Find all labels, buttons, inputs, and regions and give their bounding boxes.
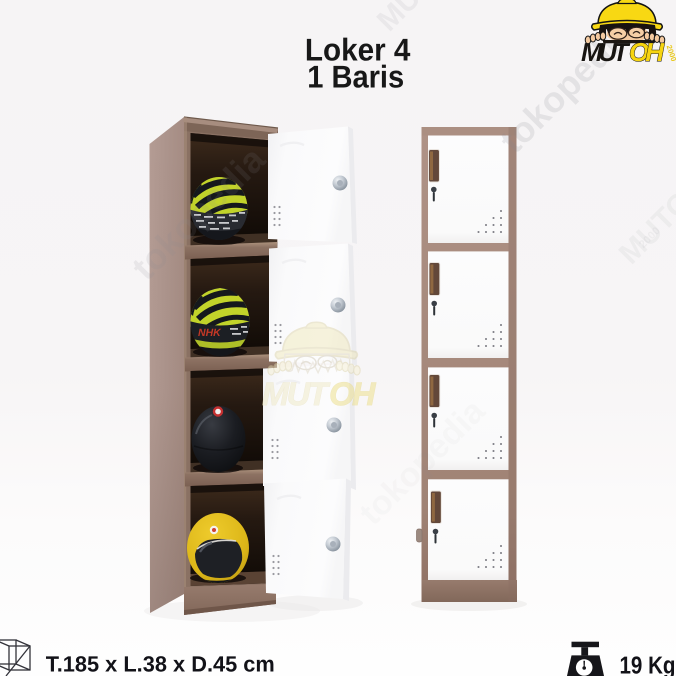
svg-text:MUT: MUT (581, 38, 631, 67)
svg-text:T.185 x L.38 x D.45 cm: T.185 x L.38 x D.45 cm (46, 652, 275, 676)
svg-text:OH: OH (329, 376, 376, 413)
svg-text:1 Baris: 1 Baris (307, 59, 404, 95)
svg-text:19 Kg: 19 Kg (620, 653, 676, 676)
svg-text:MUT: MUT (262, 376, 331, 413)
svg-text:OH: OH (629, 38, 665, 67)
svg-text:NHK: NHK (198, 327, 222, 339)
